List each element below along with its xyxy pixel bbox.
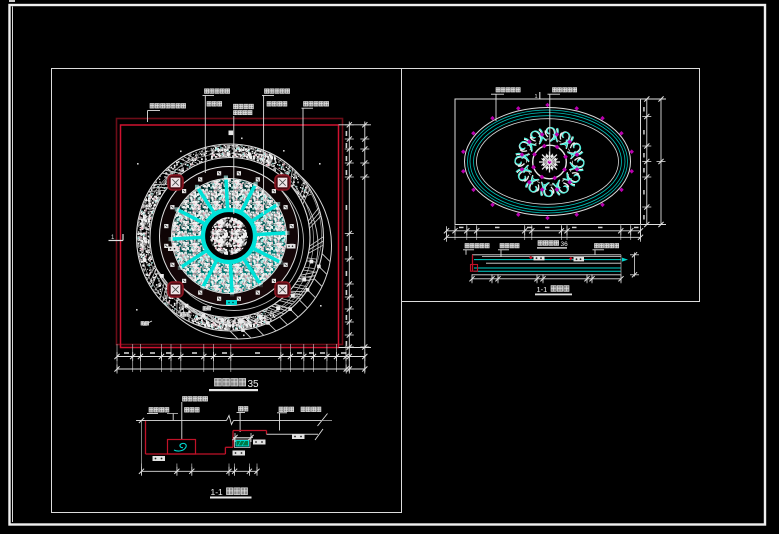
svg-text:1-1: 1-1 bbox=[537, 285, 548, 294]
svg-text:1-1: 1-1 bbox=[211, 487, 224, 497]
svg-text:35: 35 bbox=[248, 379, 260, 390]
svg-text:36: 36 bbox=[561, 241, 569, 248]
svg-text:1: 1 bbox=[535, 94, 538, 100]
